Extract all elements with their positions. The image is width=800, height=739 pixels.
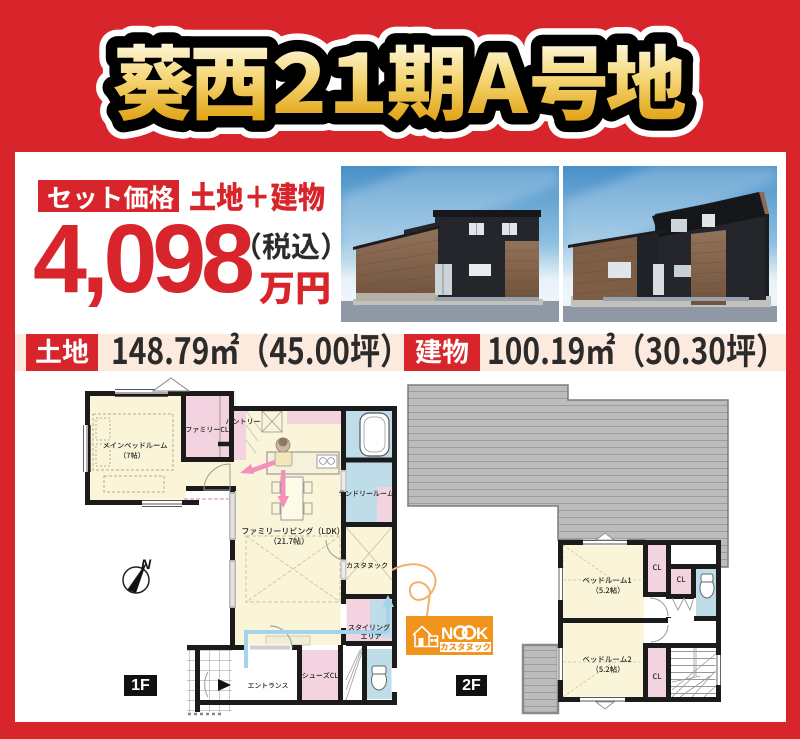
svg-text:N: N — [441, 624, 453, 643]
svg-text:K: K — [476, 624, 489, 643]
